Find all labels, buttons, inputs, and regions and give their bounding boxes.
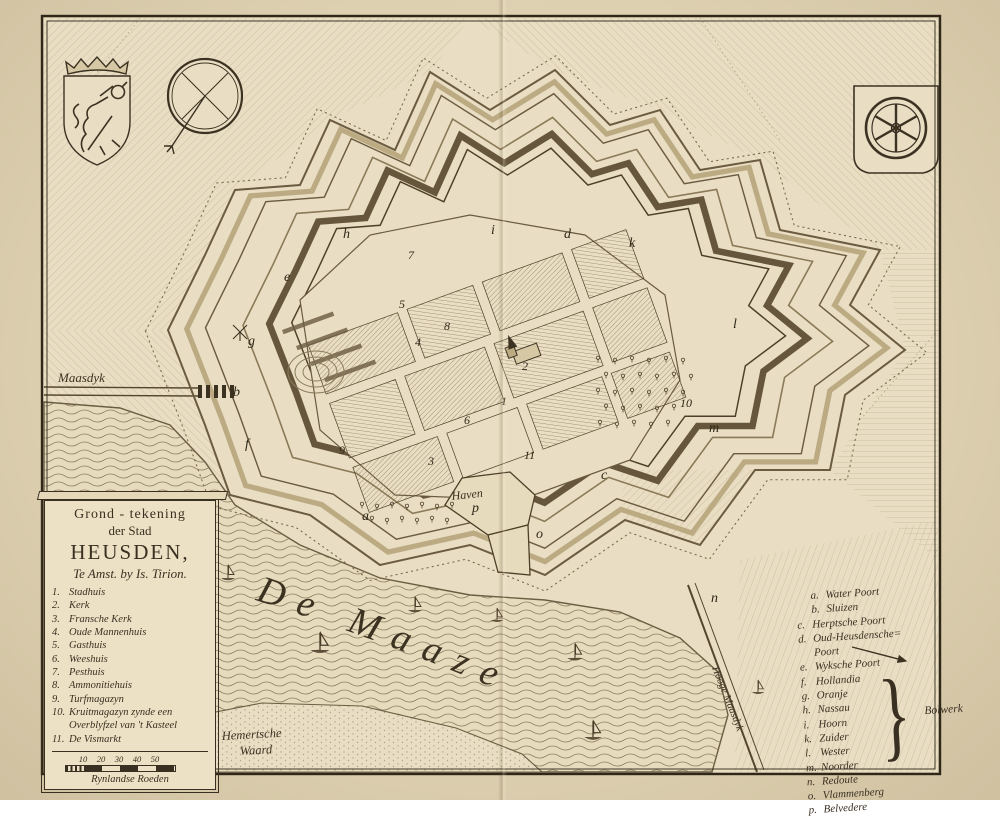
- scale-tick: 50: [146, 754, 164, 764]
- cartouche-title-city: HEUSDEN,: [52, 540, 208, 565]
- key-entry-letter: m.: [806, 760, 822, 775]
- legend-entry-label: De Vismarkt: [69, 733, 208, 746]
- legend-entry-label: Ammonitiehuis: [69, 679, 208, 692]
- legend-entry-number: 10.: [52, 706, 69, 733]
- scale-caption: Rynlandse Roeden: [52, 774, 208, 785]
- key-entry-letter: f.: [800, 674, 816, 689]
- map-letter-h: h: [343, 227, 350, 242]
- book-page: Maasdyk Hooge Maasdyk Haven Hemertsche W…: [0, 0, 1000, 800]
- map-letter-n: n: [711, 591, 718, 606]
- cartouche-title-line1: Grond - tekening: [52, 507, 208, 523]
- scale-bar: 1020304050 Rynlandse Roeden: [52, 751, 208, 785]
- legend-entry-label: Pesthuis: [69, 666, 208, 679]
- legend-entry-number: 4.: [52, 626, 69, 639]
- cartouche-imprint: Te Amst. by Is. Tirion.: [52, 566, 208, 582]
- map-letter-l: l: [733, 317, 737, 332]
- map-letter-d: d: [564, 227, 572, 242]
- map-number-8: 8: [444, 319, 450, 333]
- scale-tick: 20: [92, 754, 110, 764]
- scale-segment: [156, 766, 174, 771]
- scale-segment: [66, 766, 84, 771]
- legend-entry-number: 9.: [52, 693, 69, 706]
- legend-entry-number: 11.: [52, 733, 69, 746]
- page-fold-crease: [498, 0, 507, 800]
- map-letter-g: g: [248, 334, 255, 349]
- legend-entry-number: 8.: [52, 679, 69, 692]
- legend-entry-label: Kerk: [69, 599, 208, 612]
- legend-entry-label: Oude Mannenhuis: [69, 626, 208, 639]
- map-number-7: 7: [408, 248, 415, 262]
- maasdyk-label: Maasdyk: [57, 370, 105, 385]
- map-letter-p: p: [471, 501, 479, 516]
- key-entry-letter: a.: [810, 588, 826, 603]
- map-number-10: 10: [680, 396, 692, 410]
- legend-entry: 9.Turfmagazyn: [52, 693, 208, 706]
- legend-entry: 5.Gasthuis: [52, 639, 208, 652]
- bolwerk-brace: }: [876, 664, 913, 766]
- key-entry-letter: n.: [807, 774, 823, 789]
- map-letter-m: m: [709, 421, 719, 436]
- map-number-2: 2: [522, 359, 528, 373]
- legend-entry: 8.Ammonitiehuis: [52, 679, 208, 692]
- map-letter-a: a: [362, 509, 369, 524]
- legend-entry-label: Gasthuis: [69, 639, 208, 652]
- map-number-4: 4: [415, 335, 421, 349]
- legend-entry-number: 1.: [52, 586, 69, 599]
- legend-entry: 3.Fransche Kerk: [52, 613, 208, 626]
- legend-entry-number: 5.: [52, 639, 69, 652]
- legend-entry-label: Kruitmagazyn zynde een Overblyfzel van '…: [69, 706, 208, 733]
- map-letter-i: i: [491, 223, 495, 238]
- key-entry-letter: i.: [803, 717, 819, 732]
- key-entry-letter: o.: [807, 789, 823, 804]
- key-entry-letter: p.: [808, 803, 824, 818]
- key-entry-letter: b.: [811, 602, 827, 617]
- key-entry-letter: k.: [804, 732, 820, 747]
- key-entry-label: Belvedere: [823, 800, 867, 817]
- legend-entry: 4.Oude Mannenhuis: [52, 626, 208, 639]
- title-cartouche: Grond - tekening der Stad HEUSDEN, Te Am…: [44, 500, 216, 790]
- lettered-key: a.Water Poortb.Sluizenc.Herptsche Poortd…: [795, 581, 959, 818]
- scale-segment: [84, 766, 102, 771]
- wheel-coat-of-arms: [854, 86, 938, 173]
- key-entry-letter: c.: [797, 617, 813, 632]
- map-letter-e: e: [284, 270, 290, 285]
- map-number-11: 11: [524, 448, 535, 462]
- scale-tick: 30: [110, 754, 128, 764]
- map-letter-k: k: [629, 236, 636, 251]
- scale-segment: [138, 766, 156, 771]
- cartouche-title-line2: der Stad: [52, 523, 208, 539]
- legend-entry: 11.De Vismarkt: [52, 733, 208, 746]
- legend-entry-number: 6.: [52, 653, 69, 666]
- scale-tick: 10: [74, 754, 92, 764]
- map-number-6: 6: [464, 413, 470, 427]
- key-entry-letter: g.: [801, 689, 817, 704]
- legend-entry-number: 3.: [52, 613, 69, 626]
- key-entry-label: Hollandia: [815, 672, 860, 689]
- legend-entry-number: 2.: [52, 599, 69, 612]
- key-entry-letter: h.: [802, 703, 818, 718]
- legend-entry: 2.Kerk: [52, 599, 208, 612]
- scale-bar-segments: [65, 765, 176, 772]
- scale-tick-labels: 1020304050: [74, 754, 208, 764]
- map-number-3: 3: [427, 454, 434, 468]
- legend-entry: 10.Kruitmagazyn zynde een Overblyfzel va…: [52, 706, 208, 733]
- legend-entry-label: Weeshuis: [69, 653, 208, 666]
- map-number-5: 5: [399, 297, 405, 311]
- map-letter-b: b: [233, 385, 240, 400]
- key-list: a.Water Poortb.Sluizenc.Herptsche Poortd…: [795, 581, 959, 818]
- legend-entry: 1.Stadhuis: [52, 586, 208, 599]
- legend-entry: 7.Pesthuis: [52, 666, 208, 679]
- map-number-9: 9: [339, 443, 345, 457]
- bolwerk-label: Bolwerk: [924, 702, 963, 719]
- legend-entry: 6.Weeshuis: [52, 653, 208, 666]
- map-letter-o: o: [536, 527, 543, 542]
- scale-segment: [102, 766, 120, 771]
- scale-segment: [120, 766, 138, 771]
- legend-entry-label: Fransche Kerk: [69, 613, 208, 626]
- key-entry-letter: e.: [800, 660, 816, 675]
- legend-entry-number: 7.: [52, 666, 69, 679]
- legend-entry-label: Stadhuis: [69, 586, 208, 599]
- numbered-legend: 1.Stadhuis2.Kerk3.Fransche Kerk4.Oude Ma…: [52, 586, 208, 746]
- waard-label-2: Waard: [239, 742, 273, 758]
- legend-entry-label: Turfmagazyn: [69, 693, 208, 706]
- key-entry-letter: l.: [805, 746, 821, 761]
- key-entry-letter: d.: [798, 632, 814, 647]
- map-letter-c: c: [601, 468, 608, 483]
- scale-tick: 40: [128, 754, 146, 764]
